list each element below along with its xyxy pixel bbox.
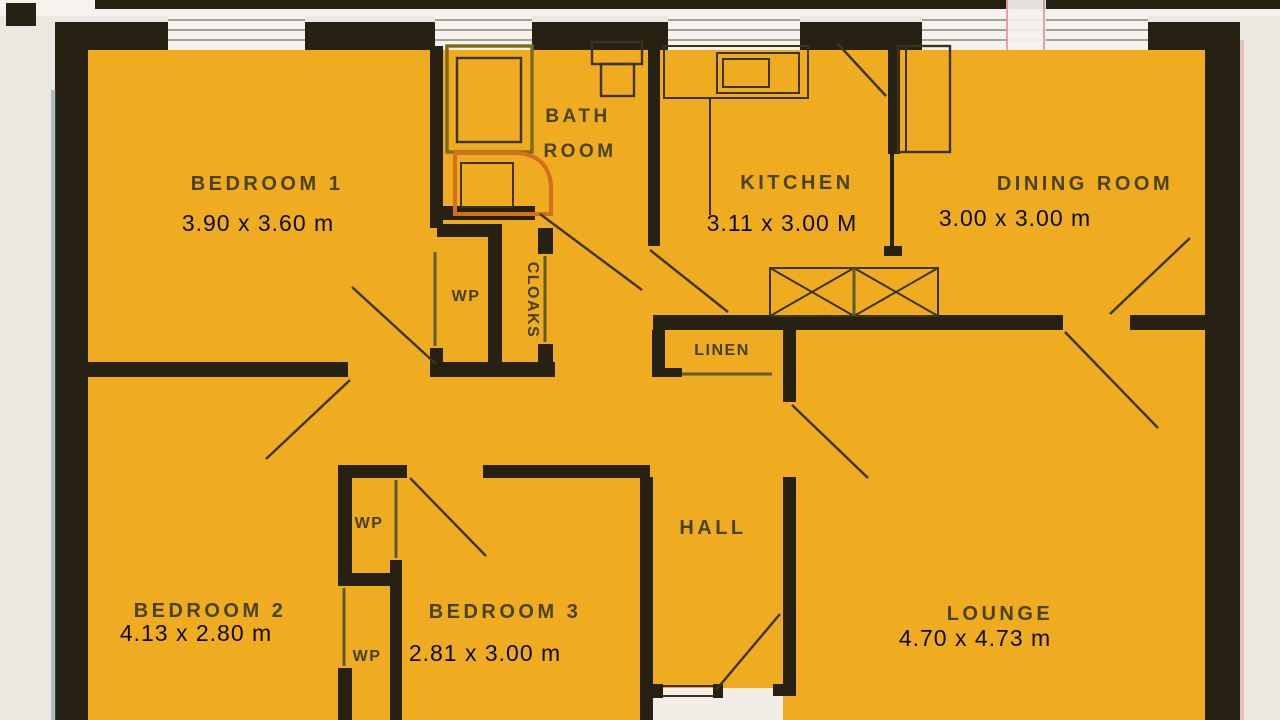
hall-west-wall bbox=[640, 477, 653, 720]
kitchen-label: KITCHEN bbox=[740, 172, 853, 194]
hall-label: HALL bbox=[679, 517, 746, 539]
right-wall bbox=[1205, 22, 1240, 720]
hall-lounge-wall bbox=[783, 477, 796, 688]
wp-hall-label: WP bbox=[452, 288, 481, 305]
scan-crease bbox=[1006, 0, 1046, 50]
bathroom-label-line2: ROOM bbox=[543, 141, 616, 162]
kitchen-dims: 3.11 x 3.00 M bbox=[707, 210, 858, 236]
bedroom1-dims: 3.90 x 3.60 m bbox=[182, 210, 334, 236]
wp-bedroom3-label: WP bbox=[355, 515, 384, 532]
dining-room-dims: 3.00 x 3.00 m bbox=[939, 205, 1091, 231]
dining-room-label: DINING ROOM bbox=[997, 173, 1173, 195]
cloaks-label: CLOAKS bbox=[524, 262, 541, 339]
bedroom1-label: BEDROOM 1 bbox=[191, 173, 344, 195]
left-edge-fringe bbox=[51, 90, 56, 720]
closet-linen: LINEN bbox=[694, 342, 750, 359]
bedroom3-hall-side bbox=[390, 560, 402, 720]
window-bedroom1 bbox=[168, 12, 305, 50]
lounge-label: LOUNGE bbox=[947, 603, 1054, 625]
right-edge-fringe bbox=[1240, 40, 1244, 720]
scan-corner-mark bbox=[6, 3, 36, 26]
lounge-dims: 4.70 x 4.73 m bbox=[899, 625, 1051, 651]
wp-bedroom2-label: WP bbox=[353, 648, 382, 665]
bedroom3-label: BEDROOM 3 bbox=[429, 601, 582, 623]
bedroom2-dims: 4.13 x 2.80 m bbox=[120, 620, 272, 646]
bedroom2-label: BEDROOM 2 bbox=[134, 600, 287, 622]
left-wall bbox=[55, 22, 88, 720]
bedroom3-dims: 2.81 x 3.00 m bbox=[409, 640, 561, 666]
bathroom-kitchen-wall bbox=[648, 46, 660, 246]
linen-label: LINEN bbox=[694, 342, 750, 359]
scan-edge-strip bbox=[95, 0, 1280, 9]
room-bedroom2: BEDROOM 2 4.13 x 2.80 m bbox=[120, 600, 286, 646]
bedroom1-bedroom2-wall bbox=[88, 362, 348, 377]
bathroom-label-line1: BATH bbox=[545, 106, 610, 127]
window-kitchen bbox=[668, 12, 800, 50]
floor-plan: BEDROOM 1 3.90 x 3.60 m BATH ROOM KITCHE… bbox=[0, 0, 1280, 720]
room-hall: HALL bbox=[679, 517, 746, 539]
floor-plan-scan: BEDROOM 1 3.90 x 3.60 m BATH ROOM KITCHE… bbox=[0, 0, 1280, 720]
